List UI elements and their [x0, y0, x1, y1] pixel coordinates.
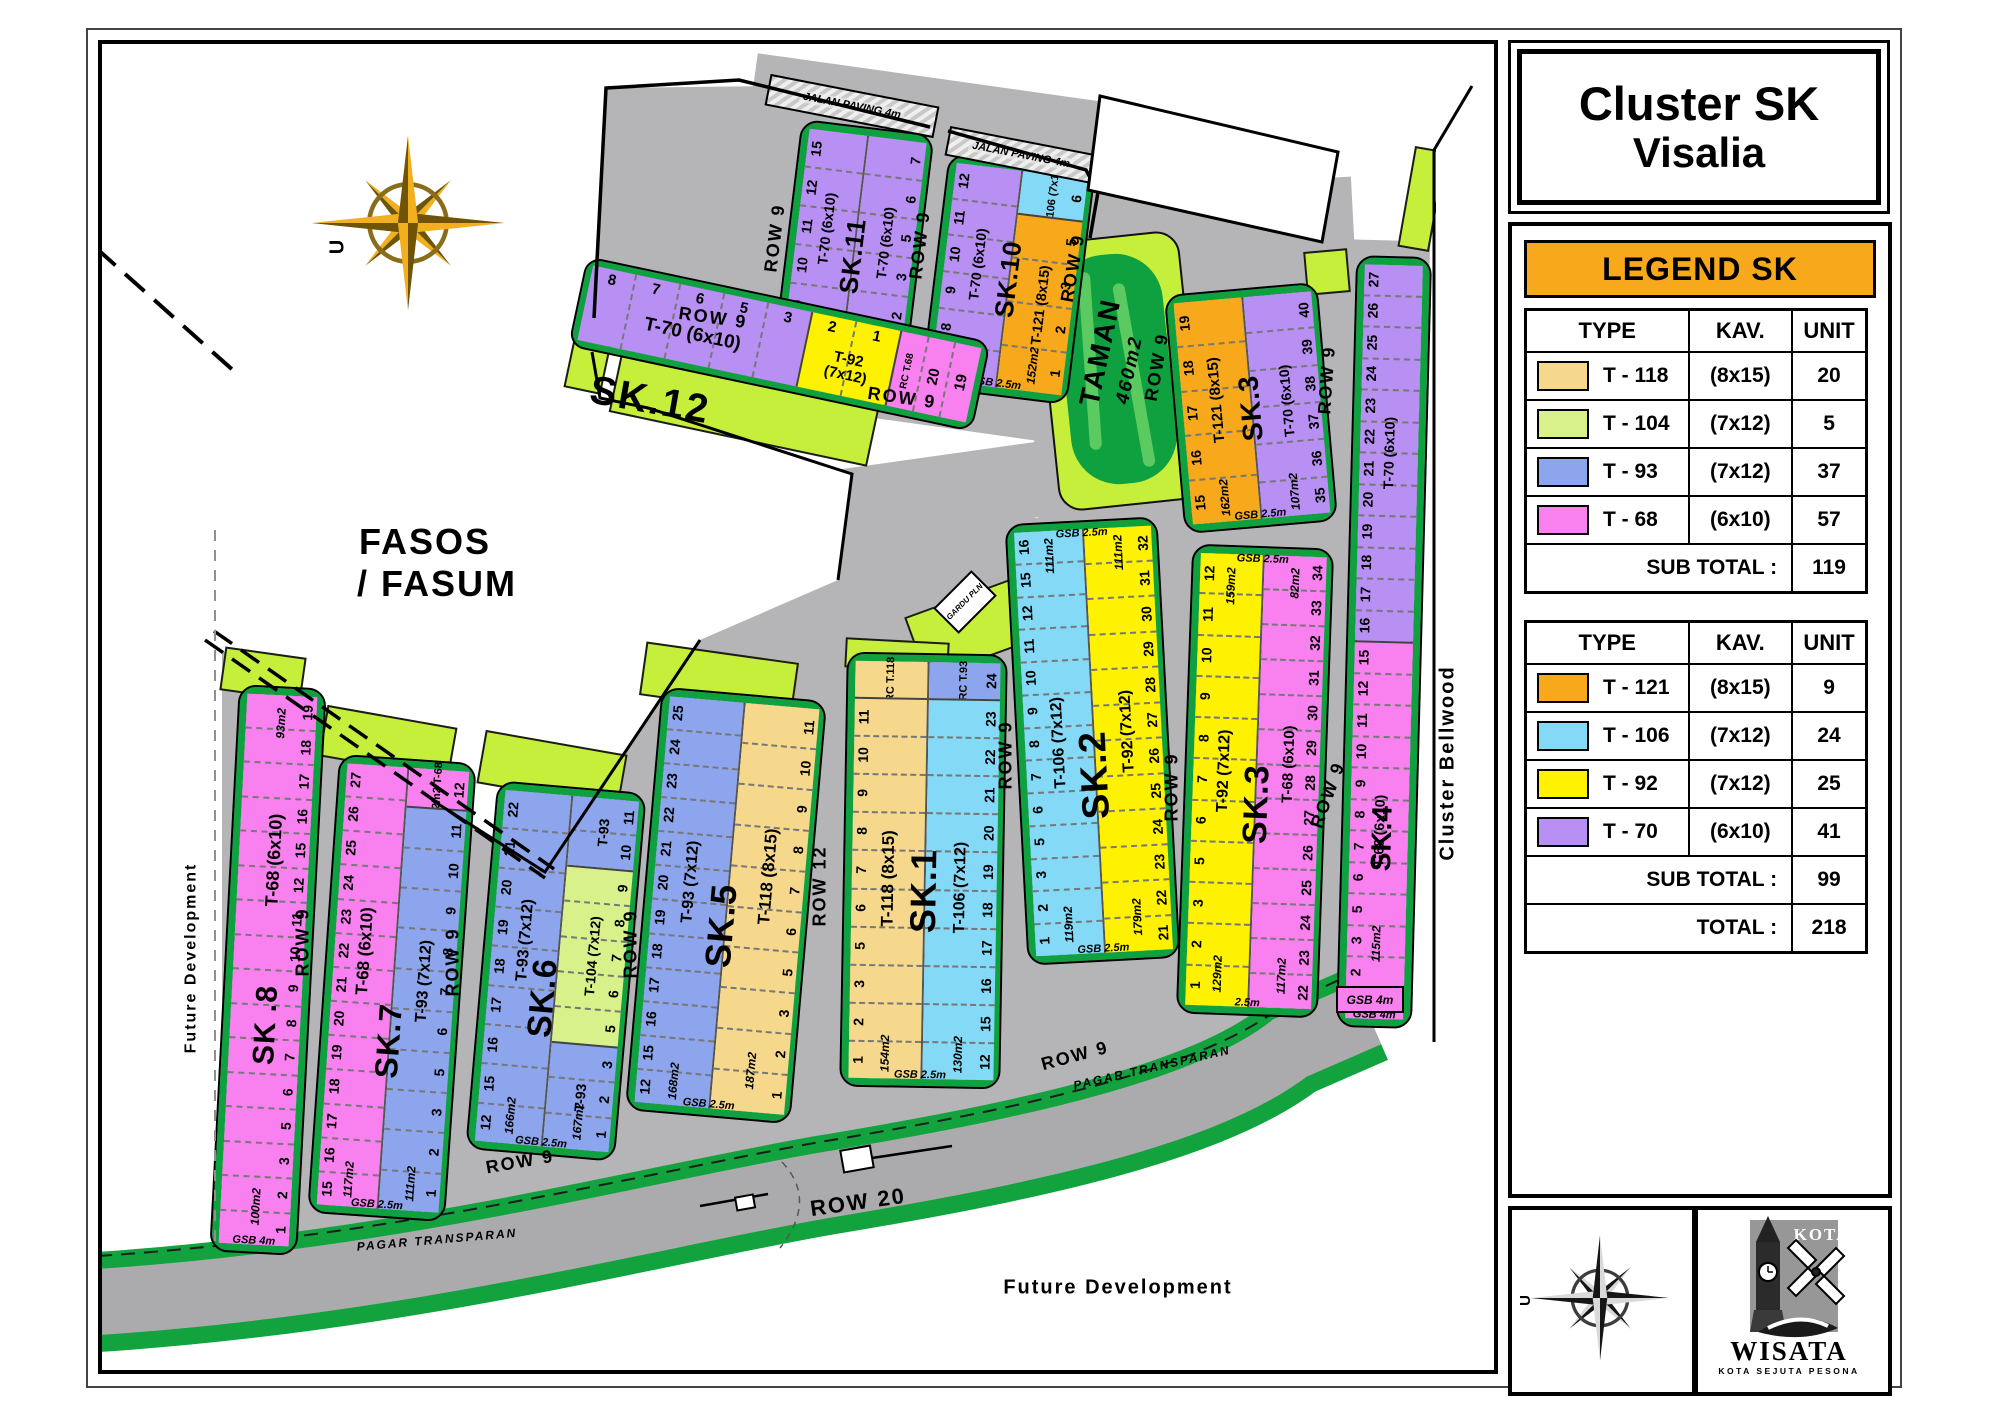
logo-kota-text: KOTA: [1794, 1225, 1851, 1244]
lot-cell: 2: [849, 1002, 921, 1041]
lot-cell: 11: [570, 796, 639, 835]
lot-number: 6: [280, 1084, 295, 1101]
legend-column-header: UNIT: [1792, 622, 1866, 665]
legend-kav: (7x12): [1689, 448, 1793, 496]
legend-total-value: 218: [1792, 904, 1866, 953]
lot-number: 15: [1192, 494, 1207, 511]
legend-type: T - 70: [1603, 820, 1658, 844]
lot-cell: 5: [850, 925, 922, 964]
lot-number: 35: [1312, 487, 1327, 504]
lot-segment-t118: 111098765321: [848, 697, 926, 1079]
legend-table: TYPEKAV.UNITT - 121(8x15)9T - 106(7x12)2…: [1524, 620, 1868, 954]
lot-number: 11: [799, 217, 815, 235]
lot-cell: 8: [1194, 716, 1257, 759]
lot-type-label: RC T.68: [898, 352, 916, 390]
lot-segment-t106: 23222120191817161512: [922, 698, 1000, 1080]
legend-box: LEGEND SK TYPEKAV.UNITT - 118(8x15)20T -…: [1508, 222, 1892, 1198]
legend-swatch: [1537, 361, 1589, 391]
lot-cell: 11: [404, 808, 467, 850]
legend-type: T - 106: [1603, 724, 1670, 748]
lot-number: 21: [658, 840, 673, 857]
lot-number: 1: [1037, 932, 1052, 949]
legend-subtotal-value: 119: [1792, 544, 1866, 593]
lot-cell: 11: [854, 699, 926, 736]
lot-number: 17: [296, 774, 311, 791]
lot-number: 25: [343, 840, 358, 857]
legend-swatch: [1537, 457, 1589, 487]
lot-cell: 17: [485, 984, 554, 1029]
lot-segment-t70: 87653T-70 (6x10): [577, 266, 811, 387]
lot-number: 16: [643, 1010, 658, 1027]
lot-cell: 6: [725, 905, 802, 952]
lot-number: 32: [1308, 635, 1323, 651]
lot-cell: 3: [1007, 256, 1077, 308]
compass-rose-map: [300, 118, 520, 333]
lot-cell: 19: [1174, 297, 1245, 346]
lot-cell: 20: [495, 866, 564, 911]
lot-cell: 9: [735, 782, 812, 829]
body: { "title": {"line1": "Cluster SK", "line…: [0, 0, 2000, 1413]
tr: TYPEKAV.UNIT: [1526, 310, 1867, 353]
block-column: RC T.118111098765321T-118 (8x15)154m2: [848, 661, 927, 1079]
lot-segment-t118: RC T.118: [855, 661, 927, 698]
polygon: [398, 223, 408, 310]
lot-cell: 8: [732, 823, 809, 870]
lot-number: 6: [606, 985, 621, 1002]
lot-number: 10: [1354, 744, 1368, 760]
lot-cell: 8: [1024, 724, 1093, 760]
lot-number: 8: [855, 823, 869, 839]
thead: TYPEKAV.UNIT: [1526, 310, 1867, 353]
lot-number: 21: [1361, 460, 1375, 476]
legend-unit: 57: [1792, 496, 1866, 544]
lot-number: 10: [1199, 647, 1214, 663]
lot-number: 26: [1365, 303, 1379, 319]
lot-cell: 18: [324, 1068, 386, 1106]
lot-number: 23: [664, 772, 679, 789]
lot-cell: 5: [387, 1048, 450, 1092]
lot-cell: 2: [546, 1076, 615, 1117]
lot-number: 9: [942, 282, 958, 300]
lot-number: 3: [852, 976, 866, 992]
lot-number: 29: [1304, 740, 1319, 756]
legend-swatch: [1537, 505, 1589, 535]
lot-cell: 7: [728, 864, 805, 911]
legend-kav: (8x15): [1689, 352, 1793, 400]
lot-number: 31: [1137, 570, 1152, 587]
lot-number: 11: [1022, 638, 1037, 655]
lot-number: 12: [291, 877, 306, 894]
lot-number: 11: [621, 809, 636, 826]
lot-cell: 30: [1087, 595, 1156, 634]
block-column: 272625242322212019181716T-70 (6x10)15121…: [1345, 264, 1423, 1019]
block-sk4: 272625242322212019181716T-70 (6x10)15121…: [1338, 257, 1430, 1027]
lot-number: 11: [951, 209, 967, 227]
td: T - 68: [1526, 496, 1689, 544]
lot-cell: 30: [1259, 693, 1322, 730]
lot-cell: 12: [1017, 593, 1086, 629]
lot-number: 5: [1063, 234, 1079, 252]
lot-cell: 5: [1189, 840, 1252, 883]
legend-unit: 5: [1792, 400, 1866, 448]
td: T - 70: [1526, 808, 1689, 856]
circle: [1812, 1268, 1820, 1276]
lot-number: 5: [432, 1064, 447, 1081]
lot-cell: 26: [1094, 736, 1163, 775]
block-sk7: 27262524232221201918171615T-68 (6x10)117…: [309, 756, 474, 1220]
lot-number: 25: [1148, 783, 1163, 800]
lot-number: 2: [851, 1014, 865, 1030]
lot-cell: 10: [401, 846, 464, 890]
legend-column-header: KAV.: [1689, 622, 1793, 665]
lot-cell: 15: [923, 1003, 995, 1042]
lot-cell: 7: [1349, 829, 1408, 862]
lot-cell: 25: [1362, 325, 1421, 358]
tbody: T - 118(8x15)20T - 104(7x12)5T - 93(7x12…: [1526, 352, 1867, 593]
block-sk3t: 1918171615T-121 (8x15)162m2403938373635T…: [1166, 284, 1336, 532]
gsb-label: GSB 2.5m: [1237, 552, 1289, 566]
lot-cell: 3: [717, 986, 794, 1033]
lot-cell: 6: [1191, 798, 1254, 841]
legend-unit: 24: [1792, 712, 1866, 760]
lot-cell: 2: [1033, 887, 1102, 923]
lot-number: 3: [776, 1005, 791, 1022]
legend-row: T - 92(7x12)25: [1526, 760, 1867, 808]
lot-cell: 17: [924, 927, 996, 966]
legend-header: LEGEND SK: [1524, 240, 1876, 298]
legend-swatch: [1537, 769, 1589, 799]
lot-cell: 23: [1250, 937, 1313, 974]
lot-cell: 22: [927, 736, 999, 775]
legend-subtotal-row: SUB TOTAL :119: [1526, 544, 1867, 593]
block-sk2: 161512111098765321T-106 (7x12)111m2119m2…: [1007, 518, 1179, 963]
lot-cell: 31: [1085, 559, 1154, 598]
lot-number: 40: [1296, 301, 1311, 318]
lot-number: 3: [599, 1056, 614, 1073]
lot-cell: 38: [1250, 364, 1321, 407]
lot-cell: 2: [1346, 955, 1405, 988]
legend-kav: (7x12): [1689, 760, 1793, 808]
legend-type: T - 104: [1603, 412, 1670, 436]
polygon: [398, 136, 408, 223]
title-line2: Visalia: [1633, 130, 1765, 175]
lot-cell: 16: [240, 795, 312, 833]
lot-number: 5: [278, 1118, 293, 1135]
lot-number: 2: [773, 1045, 788, 1062]
lot-number: 7: [437, 983, 452, 1000]
lot-number: 29: [1141, 641, 1156, 658]
lot-number: 2: [826, 318, 838, 336]
lot-number: 6: [435, 1023, 450, 1040]
lot-cell: 28: [1091, 665, 1160, 704]
lot-number: 5: [780, 964, 795, 981]
lot-cell: 6: [851, 887, 923, 926]
lot-number: 5: [1192, 853, 1207, 869]
lot-number: 24: [667, 738, 682, 755]
lot-cell: 19: [326, 1034, 388, 1072]
lot-number: 8: [284, 1015, 299, 1032]
legend-column-header: TYPE: [1526, 310, 1689, 353]
lot-number: 11: [857, 709, 871, 725]
gsb-label: GSB 4m: [1353, 1008, 1396, 1021]
lot-segment-t93: 24RC T.93: [929, 662, 1001, 699]
lot-number: 1: [593, 1126, 608, 1143]
lot-cell: 12: [407, 768, 470, 810]
lot-number: 9: [443, 903, 458, 920]
lot-number: 7: [1028, 768, 1043, 785]
lot-number: 7: [908, 152, 924, 170]
lot-cell: 9: [398, 886, 461, 930]
lot-cell: 29: [1258, 728, 1321, 765]
lot-number: 19: [1177, 315, 1192, 332]
lot-number: 8: [440, 943, 455, 960]
lot-number: 2: [1348, 964, 1362, 980]
legend-subtotal-row: SUB TOTAL :99: [1526, 856, 1867, 904]
lot-cell: 36: [1256, 438, 1327, 481]
lot-cell: 22: [502, 790, 571, 833]
legend-swatch: [1537, 673, 1589, 703]
legend-kav: (6x10): [1689, 496, 1793, 544]
lot-number: 6: [1351, 869, 1365, 885]
lot-number: 5: [898, 229, 914, 247]
lot-cell: 5: [224, 1105, 296, 1143]
lot-cell: 7: [1192, 757, 1255, 800]
legend-type: T - 68: [1603, 508, 1658, 532]
lot-cell: 10: [1021, 658, 1090, 694]
lot-cell: 6: [1028, 789, 1097, 825]
lot-cell: 7: [393, 967, 456, 1011]
lot-number: 1: [423, 1185, 438, 1202]
lot-number: 1: [769, 1086, 784, 1103]
lot-segment-t68: RC T.682019: [884, 331, 981, 423]
lot-cell: 22: [333, 932, 395, 970]
lot-cell: 10: [1352, 735, 1411, 768]
lot-cell: 17: [1356, 577, 1415, 610]
lot-cell: 7: [852, 849, 924, 888]
td: SUB TOTAL :: [1526, 544, 1793, 593]
developer-logo-box: KOTA WISATA KOTA SEJUTA PESONA: [1694, 1206, 1892, 1396]
lot-number: 11: [801, 719, 816, 736]
legend-row: T - 68(6x10)57: [1526, 496, 1867, 544]
lot-cell: 3: [1031, 855, 1100, 891]
lot-number: 21: [1156, 924, 1171, 941]
lot-cell: 3: [384, 1088, 447, 1132]
lot-number: 25: [670, 704, 685, 721]
legend-total-row: TOTAL :218: [1526, 904, 1867, 953]
lot-number: 34: [1310, 565, 1325, 581]
lot-number: 19: [495, 918, 510, 935]
lot-cell: 25: [341, 830, 403, 868]
lot-number: 8: [1352, 806, 1366, 822]
lot-number: 12: [478, 1114, 493, 1131]
lot-number: 9: [286, 980, 301, 997]
legend-kav: (7x12): [1689, 712, 1793, 760]
lot-number: 20: [498, 879, 513, 896]
lot-cell: 18: [1177, 340, 1249, 391]
lot-cell: 16: [1355, 609, 1414, 642]
lot-number: 6: [694, 290, 706, 308]
lot-cell: 23: [336, 898, 398, 936]
lot-number: 11: [1201, 606, 1216, 622]
lot-cell: 18: [244, 726, 316, 764]
lot-number: 12: [804, 178, 820, 196]
legend-type: T - 118: [1603, 364, 1668, 388]
lot-number: 6: [903, 190, 919, 208]
lot-number: 15: [293, 842, 308, 859]
lot-cell: 21: [1359, 451, 1418, 484]
lot-number: 17: [646, 976, 661, 993]
gsb-label: GSB 2.5m: [351, 1197, 404, 1213]
lot-number: 30: [1305, 705, 1320, 721]
lot-cell: 10: [1197, 633, 1260, 676]
lot-cell: 23: [1100, 843, 1169, 882]
lot-number: 12: [1020, 605, 1035, 622]
lot-cell: 39: [1246, 327, 1317, 370]
legend-column-header: UNIT: [1792, 310, 1866, 353]
lot-number: 12: [1356, 681, 1370, 697]
lot-cell: 8: [1350, 798, 1409, 831]
td: T - 93: [1526, 448, 1689, 496]
lot-cell: 23: [928, 700, 1000, 737]
lot-number: 9: [1025, 703, 1040, 720]
lot-number: 9: [615, 879, 630, 896]
lot-cell: 22: [1102, 878, 1171, 917]
lot-number: 15: [1356, 649, 1370, 665]
lot-number: 3: [1058, 277, 1074, 295]
gsb-label: GSB 2.5m: [894, 1069, 946, 1082]
compass-rose-panel: [1512, 1210, 1684, 1384]
block-sk3b: 12111098765321T-92 (7x12)159m2129m234333…: [1178, 546, 1332, 1017]
lot-number: 17: [1358, 586, 1372, 602]
legend-swatch: [1537, 817, 1589, 847]
lot-number: 8: [606, 271, 618, 289]
lot-number: 25: [1299, 879, 1314, 895]
lot-cell: 7: [558, 935, 627, 976]
lot-cell: 15: [1354, 642, 1413, 673]
lot-cell: 16: [923, 965, 995, 1004]
lot-number: 22: [505, 801, 520, 818]
td: SUB TOTAL :: [1526, 856, 1793, 904]
lot-cell: 3: [1188, 881, 1251, 924]
legend-kav: (7x12): [1689, 400, 1793, 448]
lot-segment-t68: 1512111098765321T-68 (6x10): [1345, 640, 1413, 1019]
lot-number: 2: [426, 1144, 441, 1161]
lot-number: 3: [1034, 867, 1049, 884]
legend-kav: (8x15): [1689, 664, 1793, 712]
lot-number: 22: [983, 749, 997, 765]
lot-number: 6: [1030, 801, 1045, 818]
lot-number: 16: [1016, 539, 1031, 556]
legend-type: T - 121: [1603, 676, 1670, 700]
lot-cell: 8: [229, 1002, 301, 1040]
legend-row: T - 70(6x10)41: [1526, 808, 1867, 856]
compass-box: U: [1508, 1206, 1696, 1396]
lot-number: 7: [650, 280, 662, 298]
lot-number: 3: [1190, 895, 1205, 911]
lot-number: 22: [661, 806, 676, 823]
lot-number: 15: [1018, 572, 1033, 589]
lot-cell: 19: [492, 905, 561, 950]
lot-cell: 29: [1089, 630, 1158, 669]
gsb-label: 2.5m: [1235, 996, 1260, 1009]
lot-number: 26: [345, 806, 360, 823]
lot-number: 5: [1032, 834, 1047, 851]
lot-number: 2: [1189, 936, 1204, 952]
lot-cell: 11: [235, 898, 307, 936]
lot-segment-t93: 1110T-93: [567, 796, 639, 870]
legend-row: T - 106(7x12)24: [1526, 712, 1867, 760]
lot-number: 5: [853, 937, 867, 953]
lot-cell: 16: [1185, 429, 1257, 480]
lot-number: 5: [602, 1020, 617, 1037]
lot-number: 10: [287, 946, 302, 963]
lot-cell: 6: [226, 1071, 298, 1109]
lot-segment-t70: 272625242322212019181716T-70 (6x10): [1355, 264, 1423, 641]
lot-cell: 10: [567, 829, 636, 870]
lot-number: 39: [1299, 338, 1314, 355]
lot-number: 18: [298, 739, 313, 756]
lot-number: 25: [1365, 334, 1379, 350]
lot-number: 36: [1309, 450, 1324, 467]
lot-cell: 10: [233, 933, 305, 971]
legend-subtotal-value: 99: [1792, 856, 1866, 904]
lot-cell: 11: [742, 703, 819, 748]
tbody: T - 121(8x15)9T - 106(7x12)24T - 92(7x12…: [1526, 664, 1867, 953]
lot-number: 27: [1301, 810, 1316, 826]
lot-cell: 12: [237, 864, 309, 902]
legend-row: T - 121(8x15)9: [1526, 664, 1867, 712]
lot-number: 1: [1047, 365, 1063, 383]
lot-number: 26: [1146, 747, 1161, 764]
lot-number: 17: [324, 1112, 339, 1129]
logo-tagline-text: KOTA SEJUTA PESONA: [1718, 1366, 1859, 1376]
lot-number: 24: [1150, 818, 1165, 835]
lot-number: 19: [652, 908, 667, 925]
legend-unit: 41: [1792, 808, 1866, 856]
lot-number: 16: [295, 808, 310, 825]
block-sk6: 222120191817161512T-93 (7x12)166m21110T-…: [467, 782, 644, 1159]
legend-tables: TYPEKAV.UNITT - 118(8x15)20T - 104(7x12)…: [1512, 308, 1888, 954]
lot-number: 5: [1350, 901, 1364, 917]
lot-number: 3: [782, 308, 794, 326]
lot-number: 20: [1361, 492, 1375, 508]
lot-number: 16: [322, 1146, 337, 1163]
lot-number: 16: [1188, 449, 1203, 466]
lot-cell: 17: [1181, 385, 1253, 436]
lot-number: 12: [637, 1078, 652, 1095]
lot-number: 21: [502, 840, 517, 857]
lot-cell: 23: [1361, 388, 1420, 421]
gsb-label: GSB 4m: [232, 1234, 275, 1248]
title-inner: Cluster SK Visalia: [1517, 49, 1881, 205]
lot-cell: 11: [1353, 703, 1412, 736]
lot-number: 23: [338, 908, 353, 925]
lot-cell: [855, 661, 927, 698]
lot-cell: 10: [854, 735, 926, 774]
lot-number: 18: [980, 902, 994, 918]
lot-number: 30: [1139, 605, 1154, 622]
lot-number: 26: [1300, 844, 1315, 860]
lot-number: 18: [649, 942, 664, 959]
lot-number: 22: [1154, 889, 1169, 906]
lot-cell: 24: [1098, 807, 1167, 846]
lot-cell: 19: [246, 694, 318, 730]
lot-cell: 19: [1358, 514, 1417, 547]
lot-number: 1: [871, 327, 883, 345]
lot-cell: 27: [1255, 798, 1318, 835]
lot-cell: 18: [489, 945, 558, 990]
lot-cell: 5: [1029, 822, 1098, 858]
